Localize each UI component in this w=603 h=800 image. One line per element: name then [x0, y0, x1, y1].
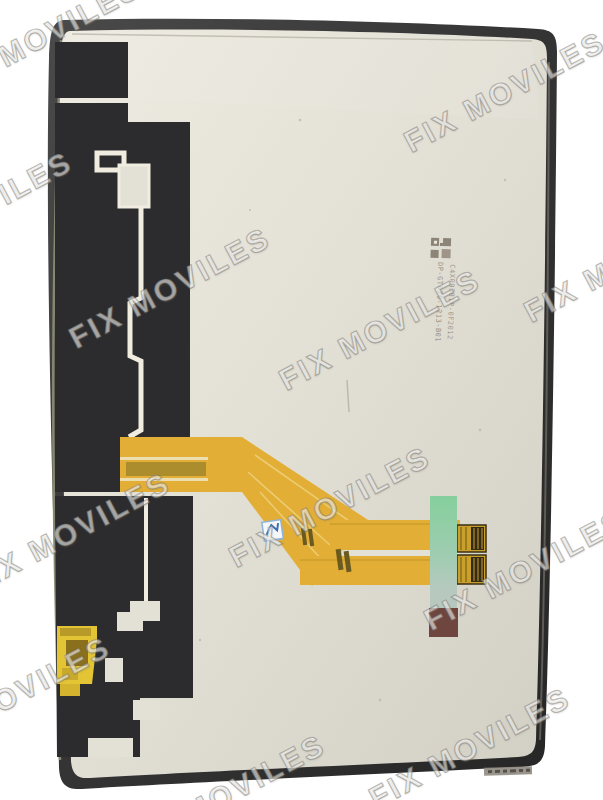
flex-connector-lower	[457, 555, 486, 584]
shield-notch-step-3	[133, 700, 160, 720]
qc-sticker	[262, 520, 283, 541]
tablet-lcd-assembly-illustration: DP-GT070-1213-B01 C4X09381P-0F2012	[0, 0, 603, 800]
shield-notch-square-2	[105, 658, 123, 682]
product-photo: DP-GT070-1213-B01 C4X09381P-0F2012 FIX M…	[0, 0, 603, 800]
shield-tape-top-block	[55, 42, 128, 98]
shield-notch-square	[119, 165, 149, 207]
flex-exit-stripe	[126, 462, 206, 476]
flex-exit-gap-line-2	[120, 478, 208, 481]
frame-marking	[484, 766, 532, 776]
shield-notch-step-4	[88, 738, 133, 757]
green-tape-strip	[429, 496, 458, 637]
flex-exit-gap-line-1	[120, 457, 208, 460]
flex-connector-upper	[457, 525, 486, 552]
maroon-pad	[429, 608, 458, 637]
